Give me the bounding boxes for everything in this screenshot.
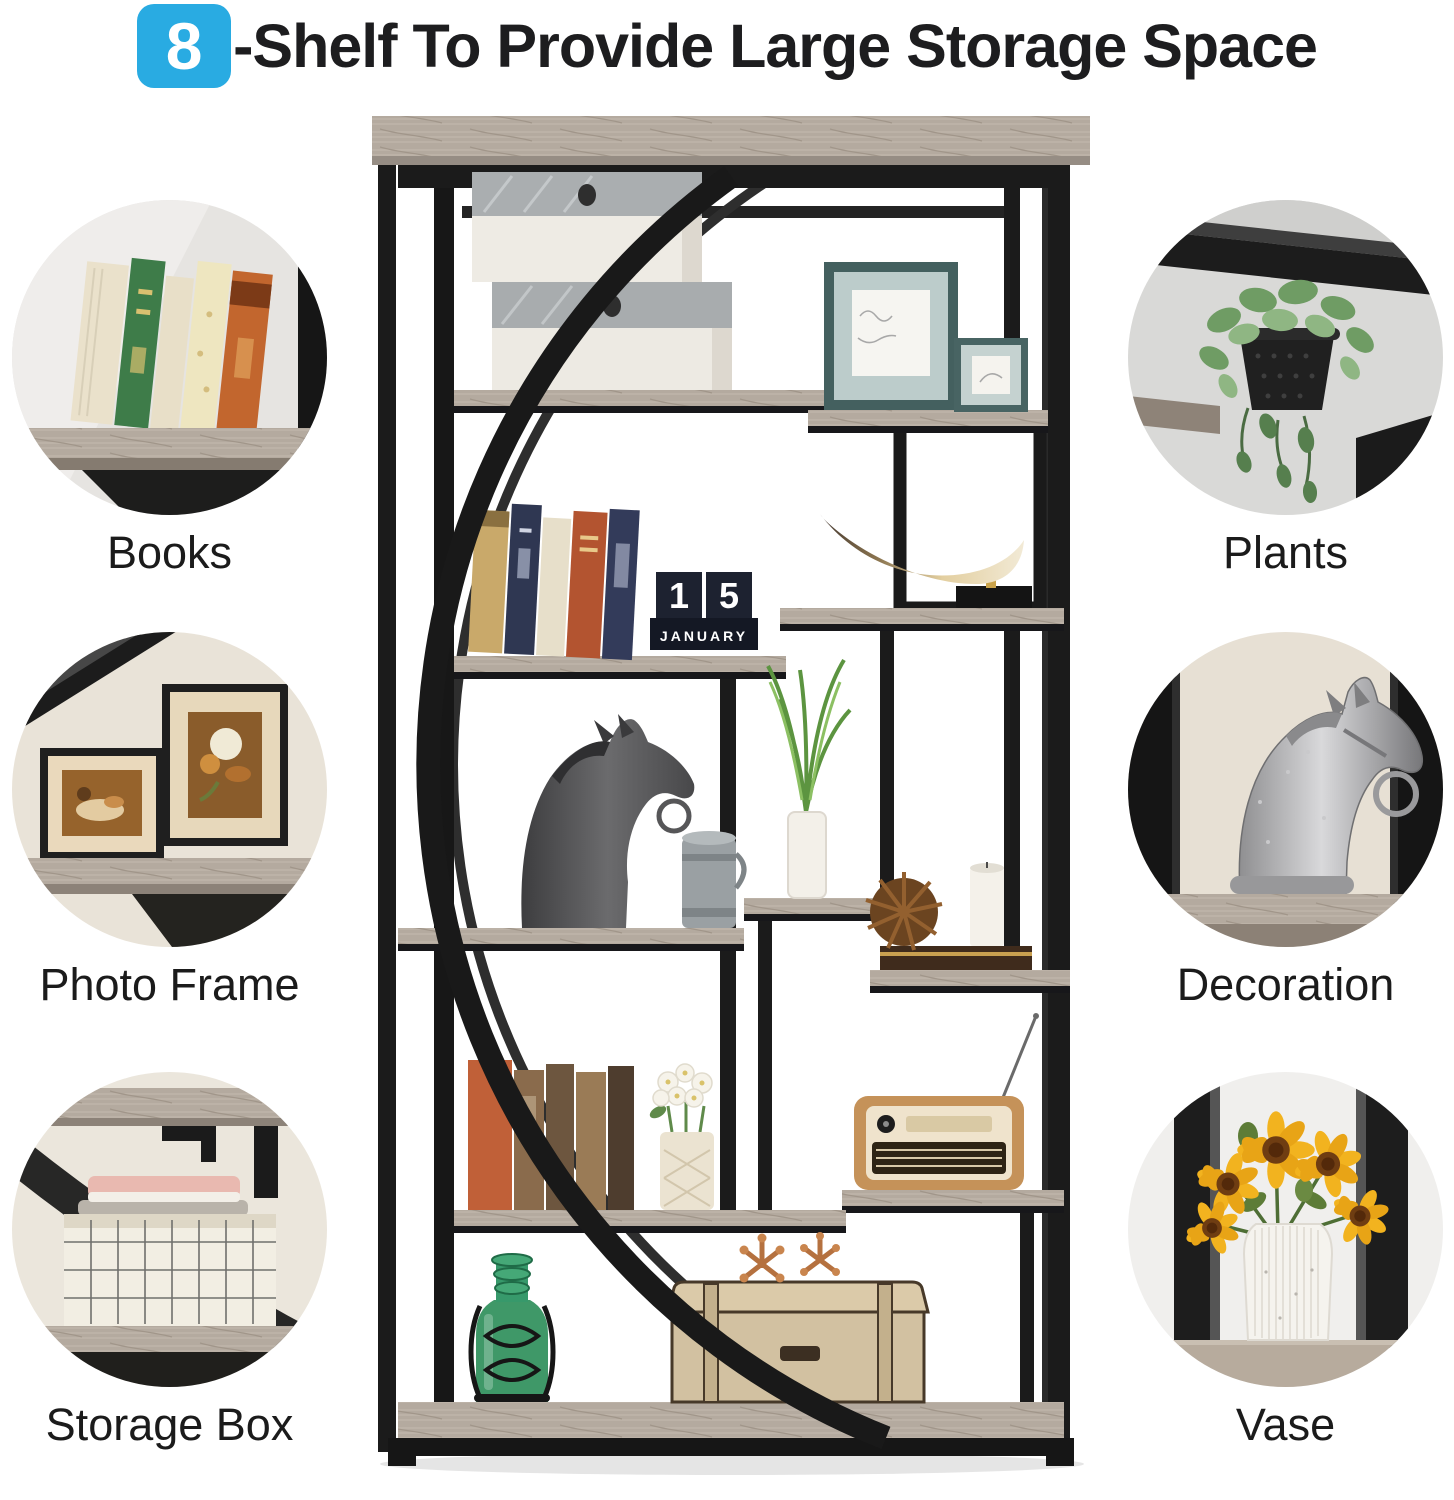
product-infographic: 8 -Shelf To Provide Large Storage Space <box>0 0 1454 1500</box>
callout-books: Books <box>12 200 327 579</box>
calendar-month: JANUARY <box>660 628 748 644</box>
shelf-frames <box>808 410 1048 433</box>
wood-shelf <box>12 428 327 458</box>
books-group <box>71 249 274 440</box>
shelf-books-2 <box>454 1210 846 1233</box>
callout-photo-frame: Photo Frame <box>12 632 327 1011</box>
callout-storage-box: Storage Box <box>12 1072 327 1451</box>
small-frame <box>40 748 164 860</box>
green-glass-vase <box>471 1254 553 1402</box>
callout-label-plants: Plants <box>1128 527 1443 579</box>
jacks-ornament <box>740 1232 841 1283</box>
photo-frame-photo <box>12 632 327 947</box>
frame-post <box>298 240 327 460</box>
calendar-day-ones: 5 <box>719 575 739 616</box>
shelf-horn <box>780 608 1064 631</box>
callout-label-books: Books <box>12 527 327 579</box>
callout-label-decoration: Decoration <box>1128 959 1443 1011</box>
storage-box-photo <box>12 1072 327 1387</box>
flower-pot <box>648 1064 714 1210</box>
photo-frames <box>824 262 1028 412</box>
shelf-radio <box>842 1190 1064 1213</box>
potted-plant <box>768 660 850 898</box>
bookshelf-product-image: 1 5 JANUARY <box>372 110 1090 1478</box>
horn-sculpture <box>820 514 1032 608</box>
books-photo <box>12 200 327 515</box>
page-title-text: -Shelf To Provide Large Storage Space <box>233 11 1317 81</box>
wood-shelf <box>12 858 327 884</box>
shelf-candle <box>870 970 1070 993</box>
shelf-count-badge: 8 <box>137 4 231 88</box>
wood-surface <box>1128 1340 1443 1387</box>
callout-plants: Plants <box>1128 200 1443 579</box>
callout-vase: Vase <box>1128 1072 1443 1451</box>
books-row-1 <box>468 502 640 660</box>
vase-photo <box>1128 1072 1443 1387</box>
vintage-radio <box>854 1013 1039 1190</box>
callout-label-photo-frame: Photo Frame <box>12 959 327 1011</box>
callout-label-vase: Vase <box>1128 1399 1443 1451</box>
wood-shelf-top <box>32 1088 327 1118</box>
callout-label-storage-box: Storage Box <box>12 1399 327 1451</box>
white-vase <box>1244 1224 1332 1340</box>
callout-decoration: Decoration <box>1128 632 1443 1011</box>
plants-photo <box>1128 200 1443 515</box>
calendar-day-tens: 1 <box>669 575 689 616</box>
decoration-photo <box>1128 632 1443 947</box>
wood-shelf <box>1128 894 1443 924</box>
metal-jug <box>682 831 744 928</box>
horse-statue <box>521 714 694 928</box>
page-title: 8 -Shelf To Provide Large Storage Space <box>0 4 1454 88</box>
flip-calendar: 1 5 JANUARY <box>650 572 758 650</box>
floor-shadow <box>380 1453 1084 1475</box>
large-frame <box>162 684 288 846</box>
wood-shelf-bottom <box>12 1326 327 1352</box>
